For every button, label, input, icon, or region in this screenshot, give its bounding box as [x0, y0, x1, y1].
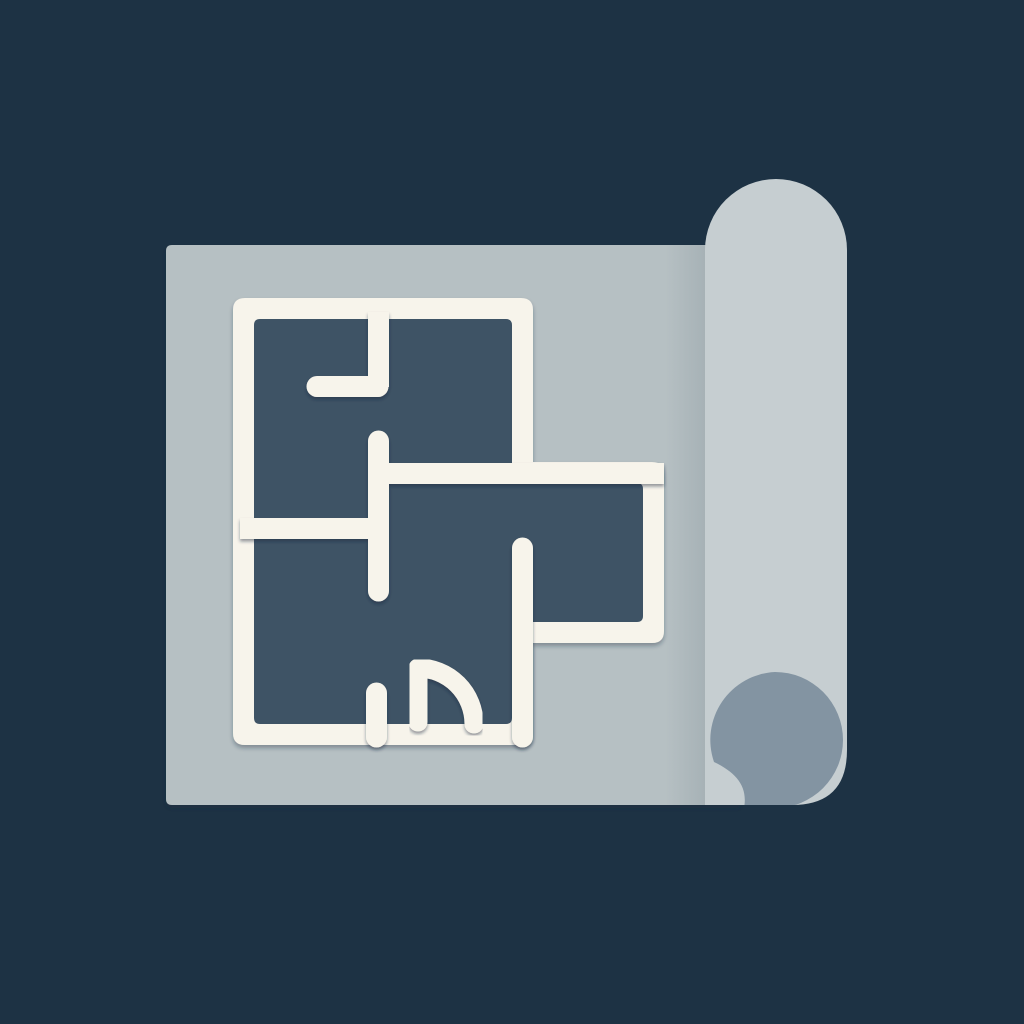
- paper-roll-edge-shade: [665, 245, 705, 805]
- blueprint-illustration: [0, 0, 1024, 1024]
- illustration-canvas: [0, 0, 1024, 1024]
- paper-roll-group: [705, 179, 847, 808]
